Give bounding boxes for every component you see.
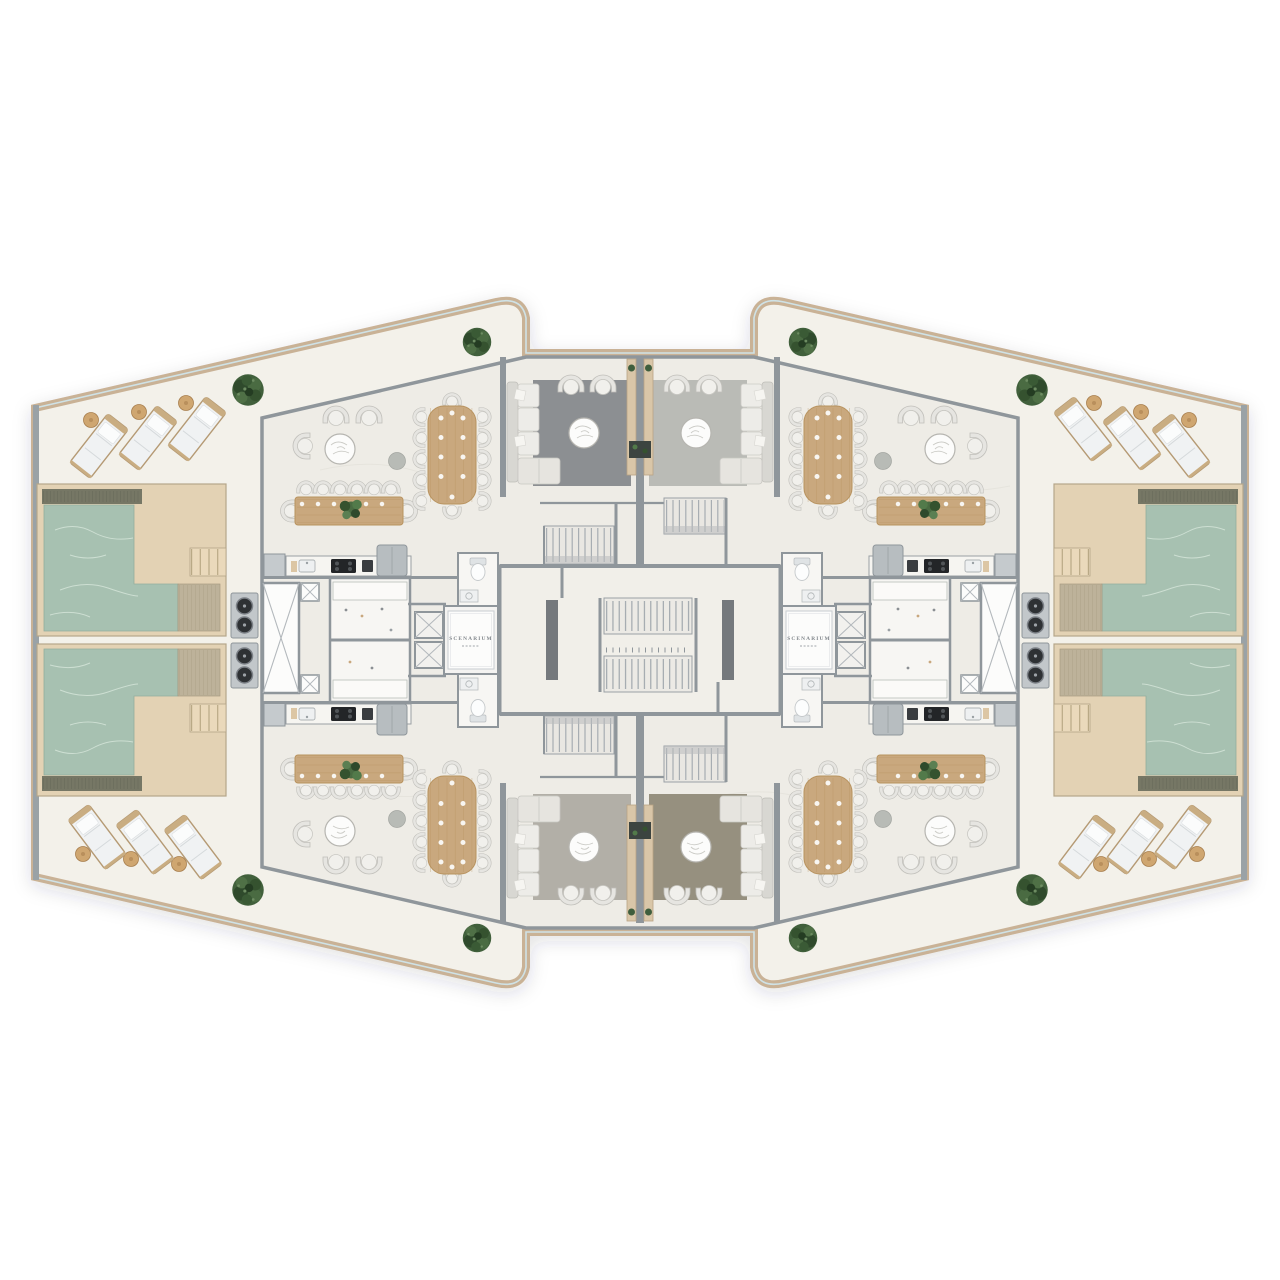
floor-plan-page: SCENARIUM SCENARIUM [0, 0, 1280, 1280]
scenarium-logo-right: SCENARIUM [787, 636, 831, 642]
floor-plan-canvas: SCENARIUM SCENARIUM [0, 0, 1280, 1280]
scenarium-logo-left: SCENARIUM [449, 636, 493, 642]
core-staircase [500, 566, 780, 714]
